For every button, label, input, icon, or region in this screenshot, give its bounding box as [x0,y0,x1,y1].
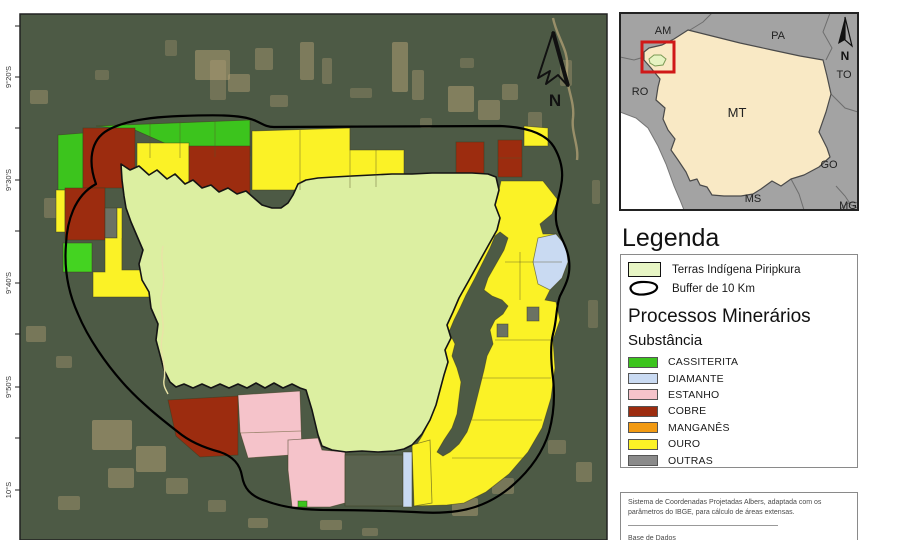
deforestation-patch [576,462,592,482]
deforestation-patch [350,88,372,98]
graticule-label: 9°20'S [4,66,13,88]
deforestation-patch [26,326,46,342]
legend-item-label: Terras Indígena Piripkura [672,264,800,276]
legend-item-territory: Terras Indígena Piripkura [628,262,857,277]
substance-swatch [628,389,658,400]
deforestation-patch [502,84,518,100]
claim-outras [345,455,403,506]
substance-swatch [628,455,658,466]
deforestation-patch [548,440,566,454]
notes-divider [628,525,778,526]
deforestation-patch [588,300,598,328]
territory-swatch [628,262,661,277]
notes-box: Sistema de Coordenadas Projetadas Albers… [620,492,858,540]
claim-outras [497,324,508,337]
substance-label: DIAMANTE [668,373,724,385]
legend-item-buffer: Buffer de 10 Km [628,280,857,298]
map-layers: N [20,14,607,540]
substance-swatch [628,373,658,384]
legend-box: Terras Indígena Piripkura Buffer de 10 K… [620,254,858,468]
substance-label: OUTRAS [668,455,713,467]
north-label: N [549,91,561,110]
deforestation-patch [300,42,314,80]
legend-substance-row: ESTANHO [628,387,857,403]
database-label: Base de Dados [628,534,850,540]
substance-swatch [628,406,658,417]
deforestation-patch [248,518,268,528]
state-label-to: TO [836,69,852,81]
buffer-outline-icon [628,280,661,298]
deforestation-patch [30,90,48,104]
substance-swatch [628,422,658,433]
substance-label: COBRE [668,405,706,417]
map-document: N9°20'S9°30'S9°40'S9°50'S10°S AMPAROMTTO… [0,0,899,540]
claim-cassiterita [298,501,307,507]
substance-label: ESTANHO [668,389,719,401]
deforestation-patch [592,180,600,204]
state-label-am: AM [655,25,672,37]
deforestation-patch [460,58,474,68]
deforestation-patch [392,42,408,92]
claim-outras [527,307,539,321]
claim-outras [105,208,117,238]
claim-cobre [498,140,522,177]
legend-substance-row: OURO [628,436,857,452]
inset-north-label: N [841,49,850,63]
state-label-mt: MT [728,105,747,120]
graticule-label: 9°30'S [4,169,13,191]
legend-substance-row: CASSITERITA [628,354,857,370]
substance-label: OURO [668,438,700,450]
claim-diamante [403,452,412,507]
territory-mini [649,55,666,66]
claim-ouro [56,190,65,232]
graticule-label: 9°40'S [4,272,13,294]
deforestation-patch [322,58,332,84]
deforestation-patch [165,40,177,56]
graticule-label: 10°S [4,482,13,498]
deforestation-patch [92,420,132,450]
deforestation-patch [478,100,500,120]
legend-substance-row: DIAMANTE [628,370,857,386]
legend-substance-row: MANGANÊS [628,420,857,436]
main-map: N9°20'S9°30'S9°40'S9°50'S10°S [0,0,618,540]
legend-section-title: Processos Minerários [628,306,857,328]
deforestation-patch [108,468,134,488]
deforestation-patch [208,500,226,512]
deforestation-patch [255,48,273,70]
inset-map: AMPAROMTTOGOMSMGN [618,12,862,211]
legend-substance-row: OUTRAS [628,452,857,468]
deforestation-patch [166,478,188,494]
state-label-ms: MS [745,193,762,205]
substance-swatch [628,439,658,450]
inset-layers: AMPAROMTTOGOMSMGN [620,13,858,211]
deforestation-patch [320,520,342,530]
legend-item-label: Buffer de 10 Km [672,283,755,295]
claim-cassiterita [63,243,92,272]
deforestation-patch [448,86,474,112]
deforestation-patch [58,496,80,510]
projection-note: Sistema de Coordenadas Projetadas Albers… [628,498,850,518]
right-panel: AMPAROMTTOGOMSMGN Legenda Terras Indígen… [618,0,862,540]
deforestation-patch [228,74,250,92]
substance-label: MANGANÊS [668,422,730,434]
substance-swatch [628,357,658,368]
state-label-ro: RO [632,86,649,98]
deforestation-patch [56,356,72,368]
legend-subsection-title: Substância [628,332,857,349]
state-label-go: GO [820,159,838,171]
deforestation-patch [270,95,288,107]
deforestation-patch [210,60,226,100]
legend-substance-row: COBRE [628,403,857,419]
substance-label: CASSITERITA [668,356,738,368]
claim-cassiterita [58,133,83,190]
deforestation-patch [412,70,424,100]
state-label-pa: PA [771,30,786,42]
deforestation-patch [136,446,166,472]
claim-ouro [412,440,432,506]
substance-list: CASSITERITADIAMANTEESTANHOCOBREMANGANÊSO… [628,354,857,469]
deforestation-patch [95,70,109,80]
graticule-label: 9°50'S [4,376,13,398]
deforestation-patch [362,528,378,536]
legend-title: Legenda [622,224,719,253]
